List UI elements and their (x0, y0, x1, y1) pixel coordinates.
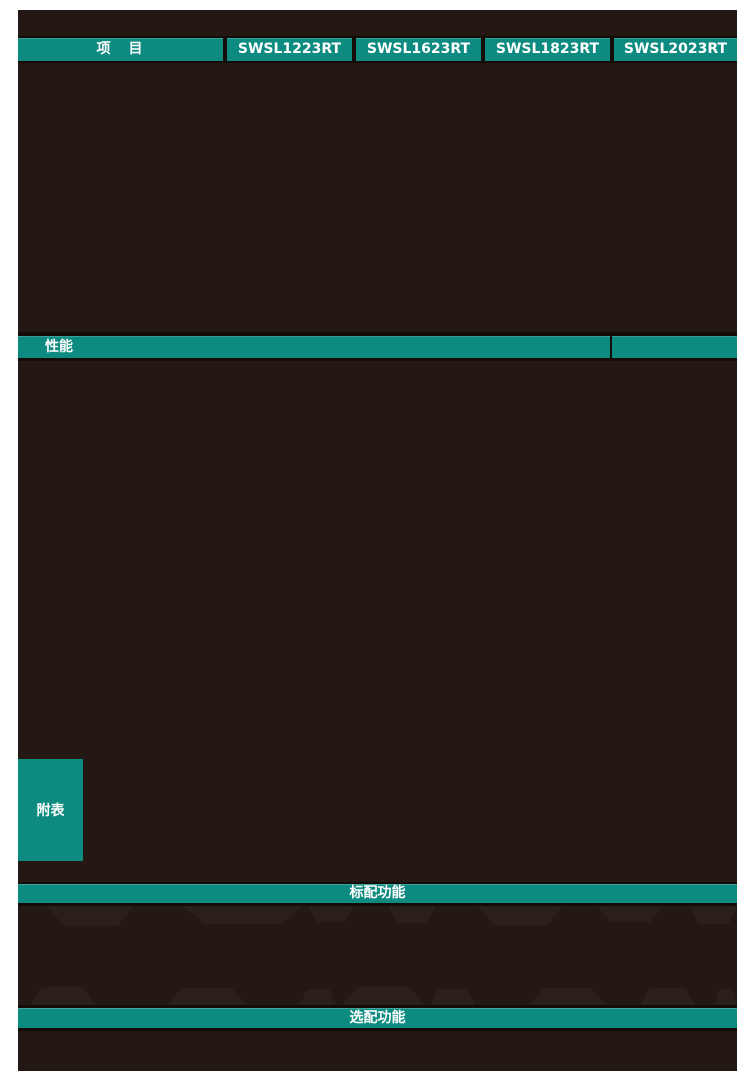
faint-icon-silhouette (183, 906, 303, 924)
header-model-swsl1823rt: SWSL1823RT (485, 38, 610, 61)
faint-icon-silhouette (48, 906, 133, 926)
performance-section-row: 性能 (18, 332, 737, 361)
header-model-swsl2023rt: SWSL2023RT (614, 38, 737, 61)
standard-features-bar: 标配功能 (18, 884, 737, 903)
catalog-spec-page: 项 目 SWSL1223RT SWSL1623RT SWSL1823RT SWS… (0, 0, 750, 1080)
standard-features-row: 标配功能 (18, 882, 737, 906)
performance-section-bar-right-segment (612, 336, 737, 358)
optional-features-bar: 选配功能 (18, 1008, 737, 1028)
performance-section-bar: 性能 (18, 336, 610, 358)
faint-icon-silhouette (640, 988, 695, 1005)
faint-icon-silhouette (715, 989, 737, 1005)
faint-icon-silhouette (388, 906, 436, 923)
faint-icon-silhouette (598, 906, 663, 922)
faint-icon-silhouette (308, 906, 353, 922)
performance-section-label: 性能 (18, 336, 610, 358)
spec-sheet-content: 项 目 SWSL1223RT SWSL1623RT SWSL1823RT SWS… (18, 10, 737, 1071)
faint-icon-silhouette (430, 989, 475, 1005)
faint-icon-silhouette (168, 988, 246, 1005)
faint-icon-silhouette (300, 989, 336, 1005)
appendix-tab: 附表 (18, 759, 83, 861)
appendix-tab-label: 附表 (37, 800, 65, 820)
header-item-column-label: 项 目 (18, 38, 223, 61)
optional-features-row: 选配功能 (18, 1005, 737, 1031)
faint-icon-silhouette (690, 906, 737, 924)
faint-icon-silhouette (342, 987, 424, 1005)
faint-icon-silhouette (530, 988, 605, 1005)
faint-icon-silhouette (30, 987, 95, 1005)
header-model-swsl1223rt: SWSL1223RT (227, 38, 352, 61)
header-model-swsl1623rt: SWSL1623RT (356, 38, 481, 61)
faint-icon-silhouette (478, 906, 563, 925)
spec-table-header-row: 项 目 SWSL1223RT SWSL1623RT SWSL1823RT SWS… (18, 36, 737, 63)
